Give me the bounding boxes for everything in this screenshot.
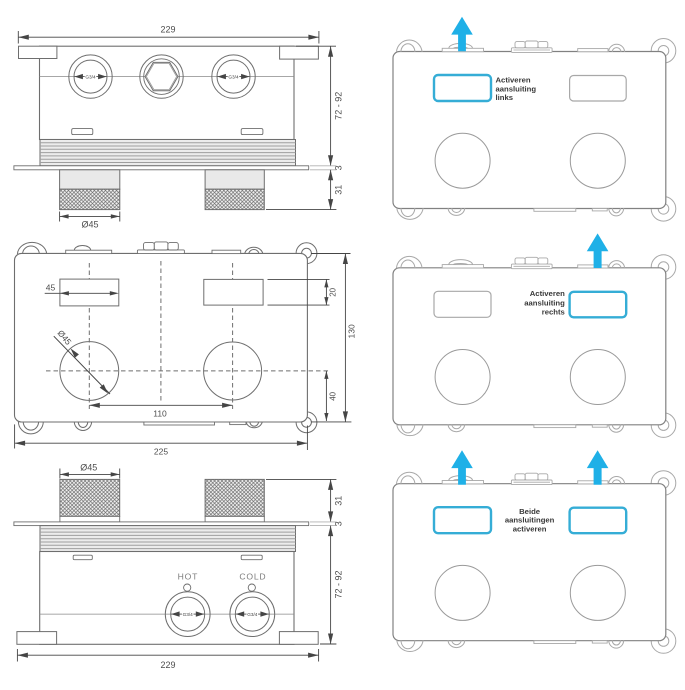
svg-text:links: links — [496, 93, 514, 102]
svg-text:3: 3 — [334, 165, 344, 170]
svg-text:G3/4: G3/4 — [85, 74, 96, 79]
svg-text:Ø45: Ø45 — [81, 220, 98, 230]
svg-text:110: 110 — [153, 409, 167, 419]
svg-text:Ø45: Ø45 — [80, 462, 97, 472]
svg-text:Activeren: Activeren — [530, 289, 565, 298]
svg-text:225: 225 — [154, 446, 168, 456]
svg-text:229: 229 — [160, 660, 175, 670]
svg-text:COLD: COLD — [239, 572, 266, 582]
svg-text:aansluitingen: aansluitingen — [505, 516, 555, 525]
svg-text:3: 3 — [334, 521, 344, 526]
svg-text:72 - 92: 72 - 92 — [334, 570, 344, 598]
svg-text:31: 31 — [334, 496, 344, 506]
svg-text:Beide: Beide — [519, 507, 541, 516]
svg-text:G3/4: G3/4 — [183, 612, 194, 617]
svg-text:rechts: rechts — [542, 307, 565, 316]
svg-text:aansluiting: aansluiting — [524, 299, 565, 308]
svg-text:G3/4: G3/4 — [228, 74, 239, 79]
svg-text:72 - 92: 72 - 92 — [334, 92, 344, 120]
svg-text:130: 130 — [346, 324, 356, 338]
svg-text:HOT: HOT — [178, 572, 199, 582]
svg-text:45: 45 — [46, 282, 56, 292]
svg-text:31: 31 — [334, 185, 344, 195]
svg-text:229: 229 — [160, 25, 175, 35]
svg-text:G3/4: G3/4 — [247, 612, 258, 617]
svg-text:aansluiting: aansluiting — [496, 84, 537, 93]
svg-text:20: 20 — [328, 287, 337, 296]
svg-text:Activeren: Activeren — [496, 76, 531, 85]
svg-text:40: 40 — [328, 391, 337, 400]
svg-text:activeren: activeren — [513, 525, 547, 534]
